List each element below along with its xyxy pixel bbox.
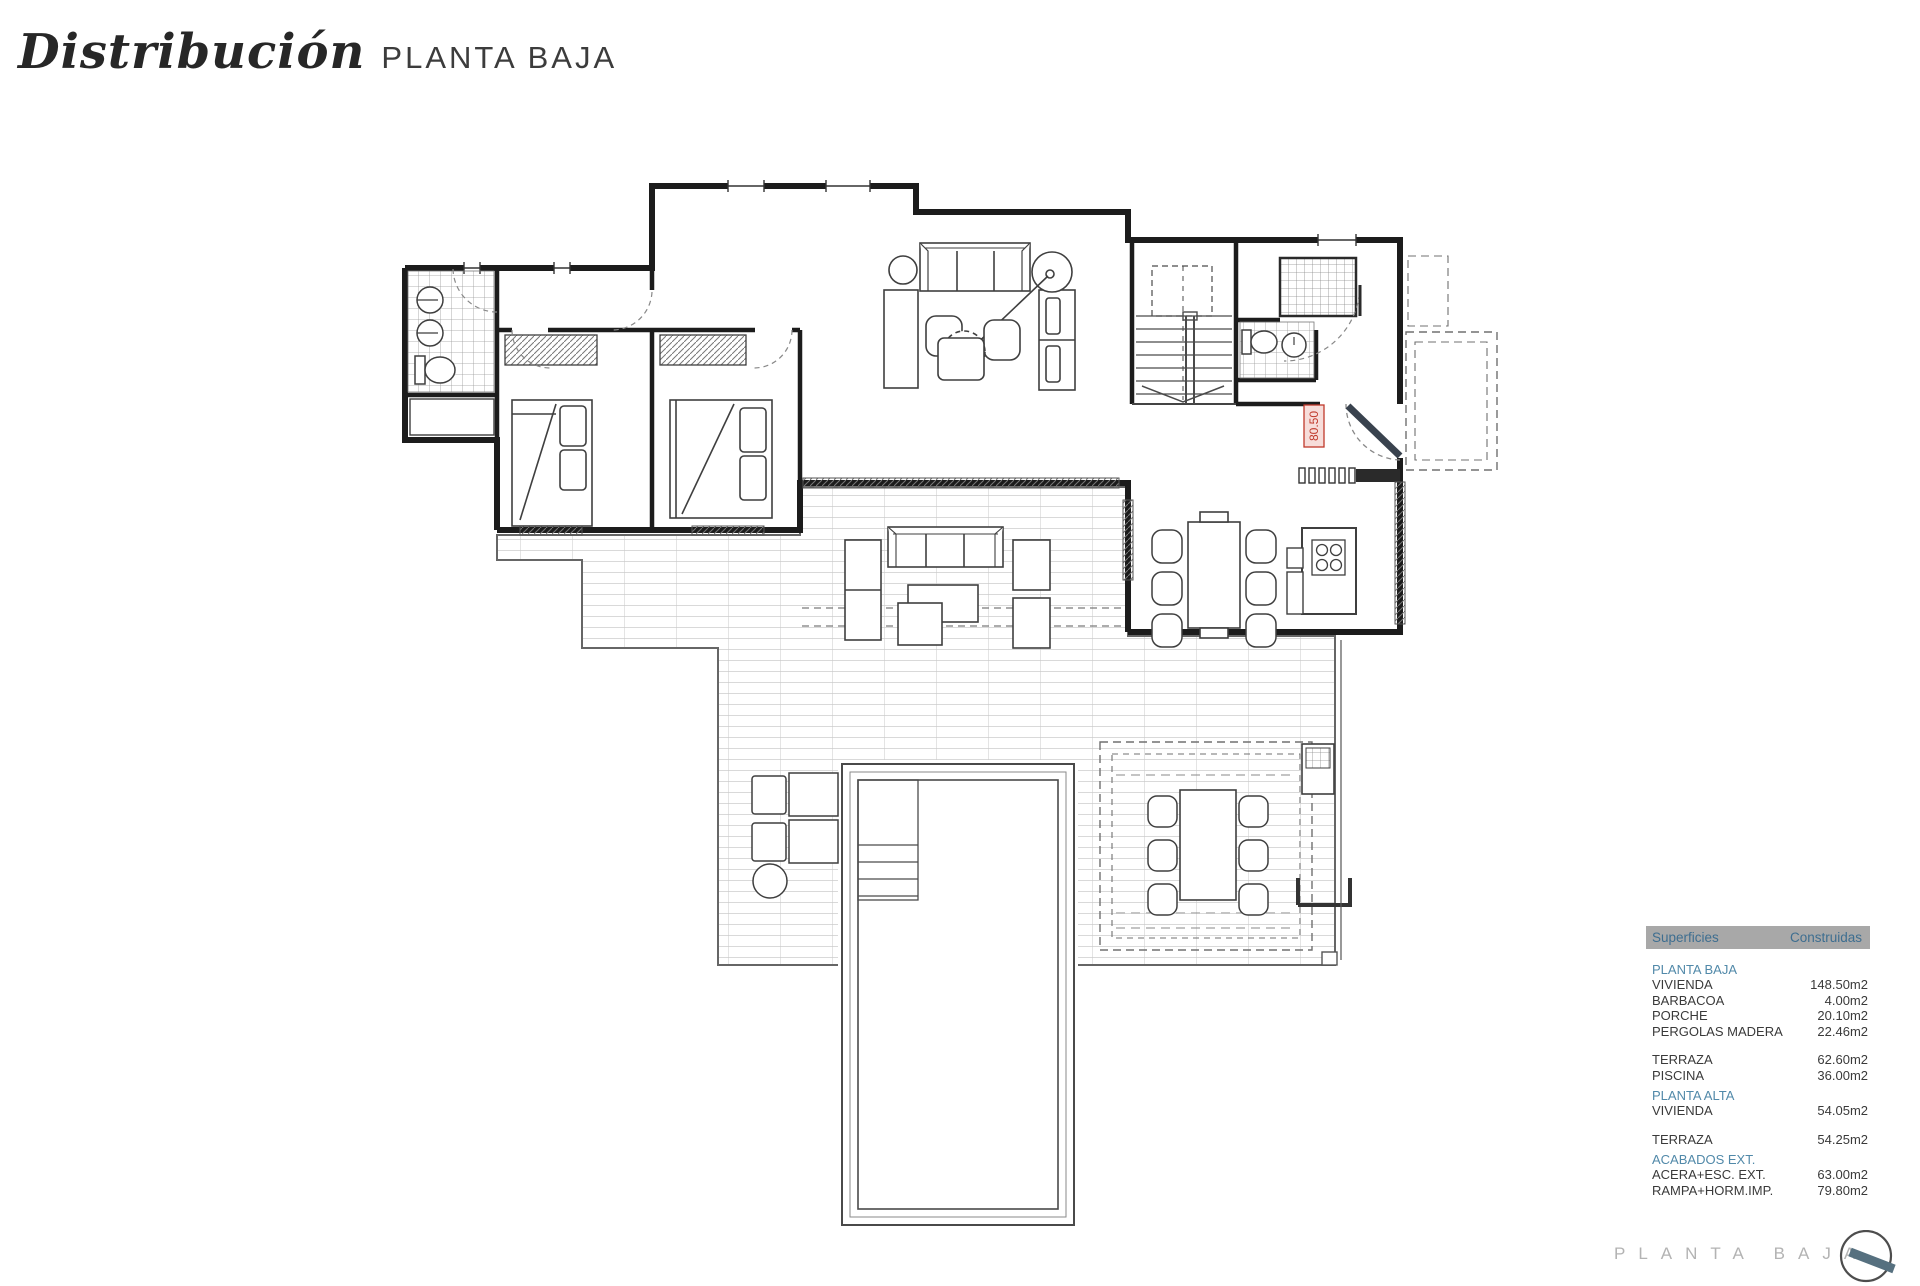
table-row: PORCHE20.10m2 — [1646, 1008, 1870, 1024]
table-row: VIVIENDA148.50m2 — [1646, 977, 1870, 993]
table-row-gap — [1646, 1119, 1870, 1132]
wardrobe-2 — [660, 335, 746, 365]
dining-table — [1188, 522, 1240, 628]
outdoor-dining-table — [1180, 790, 1236, 900]
table-row: TERRAZA54.25m2 — [1646, 1132, 1870, 1148]
col-superficies: Superficies — [1652, 930, 1719, 945]
door-arc-hall — [612, 292, 652, 330]
hall-cabinet-row — [1299, 468, 1355, 483]
toilet-1 — [415, 356, 455, 384]
exterior-pergola-ramp — [1406, 256, 1497, 470]
bedroom-1 — [505, 330, 597, 526]
bedroom-2 — [612, 292, 792, 518]
areas-table: Superficies Construidas PLANTA BAJA VIVI… — [1646, 926, 1870, 1198]
sliding-glass-east — [1395, 482, 1405, 624]
bed-2 — [670, 400, 772, 518]
kitchen-counter-2 — [1287, 572, 1303, 614]
table-row: ACERA+ESC. EXT.63.00m2 — [1646, 1167, 1870, 1183]
kitchen — [1287, 528, 1356, 614]
bathroom-1 — [408, 268, 497, 435]
staircase — [1136, 266, 1232, 404]
outdoor-sofa-3seat — [888, 527, 1003, 567]
bed-1 — [512, 400, 592, 526]
compass-logo-icon — [1836, 1230, 1896, 1286]
side-table-round — [753, 864, 787, 898]
outdoor-side-table — [898, 603, 942, 645]
table-row-gap — [1646, 1039, 1870, 1052]
footer-label: PLANTA BAJA — [1614, 1244, 1868, 1264]
sofa-side-right — [1039, 290, 1075, 390]
pool — [838, 760, 1078, 1229]
table-row: PERGOLAS MADERA22.46m2 — [1646, 1024, 1870, 1040]
entry-door-leaf — [1348, 406, 1400, 456]
vanity-counter — [410, 399, 494, 435]
table-row: RAMPA+HORM.IMP.79.80m2 — [1646, 1183, 1870, 1199]
lounger-1 — [752, 773, 838, 816]
lounger-2 — [752, 820, 838, 863]
outdoor-chair-2 — [1013, 598, 1050, 648]
bbq-unit — [1302, 744, 1334, 794]
outdoor-chair-1 — [1013, 540, 1050, 590]
window-porch-dining — [1123, 500, 1133, 580]
wardrobe-1 — [505, 335, 597, 365]
plan-footer: PLANTA BAJA — [1600, 1230, 1920, 1280]
toilet-2 — [1242, 330, 1277, 354]
shower — [1280, 258, 1356, 316]
svg-text:80.50: 80.50 — [1307, 411, 1321, 441]
outdoor-sofa-left — [845, 540, 881, 640]
coffee-table-group — [926, 316, 1020, 380]
table-row: VIVIENDA54.05m2 — [1646, 1103, 1870, 1119]
sofa-3seat — [920, 243, 1030, 291]
cooktop — [1312, 540, 1345, 575]
living-room — [884, 243, 1075, 390]
floor-plan: 80.50 — [0, 0, 1920, 1280]
table-row: PISCINA36.00m2 — [1646, 1068, 1870, 1084]
table-row-section: PLANTA BAJA — [1646, 957, 1870, 977]
table-row-section: PLANTA ALTA — [1646, 1083, 1870, 1103]
door-size-label: 80.50 — [1304, 405, 1324, 447]
sofa-side-left — [884, 290, 918, 388]
table-row: TERRAZA62.60m2 — [1646, 1052, 1870, 1068]
areas-table-header: Superficies Construidas — [1646, 926, 1870, 949]
side-table — [889, 256, 917, 284]
col-construidas: Construidas — [1790, 930, 1862, 945]
table-row: BARBACOA4.00m2 — [1646, 993, 1870, 1009]
dining-area — [1152, 512, 1276, 647]
kitchen-counter-1 — [1287, 548, 1303, 568]
door-arc-bed2 — [754, 330, 792, 368]
sliding-glass-door — [803, 478, 1119, 488]
table-row-section: ACABADOS EXT. — [1646, 1147, 1870, 1167]
